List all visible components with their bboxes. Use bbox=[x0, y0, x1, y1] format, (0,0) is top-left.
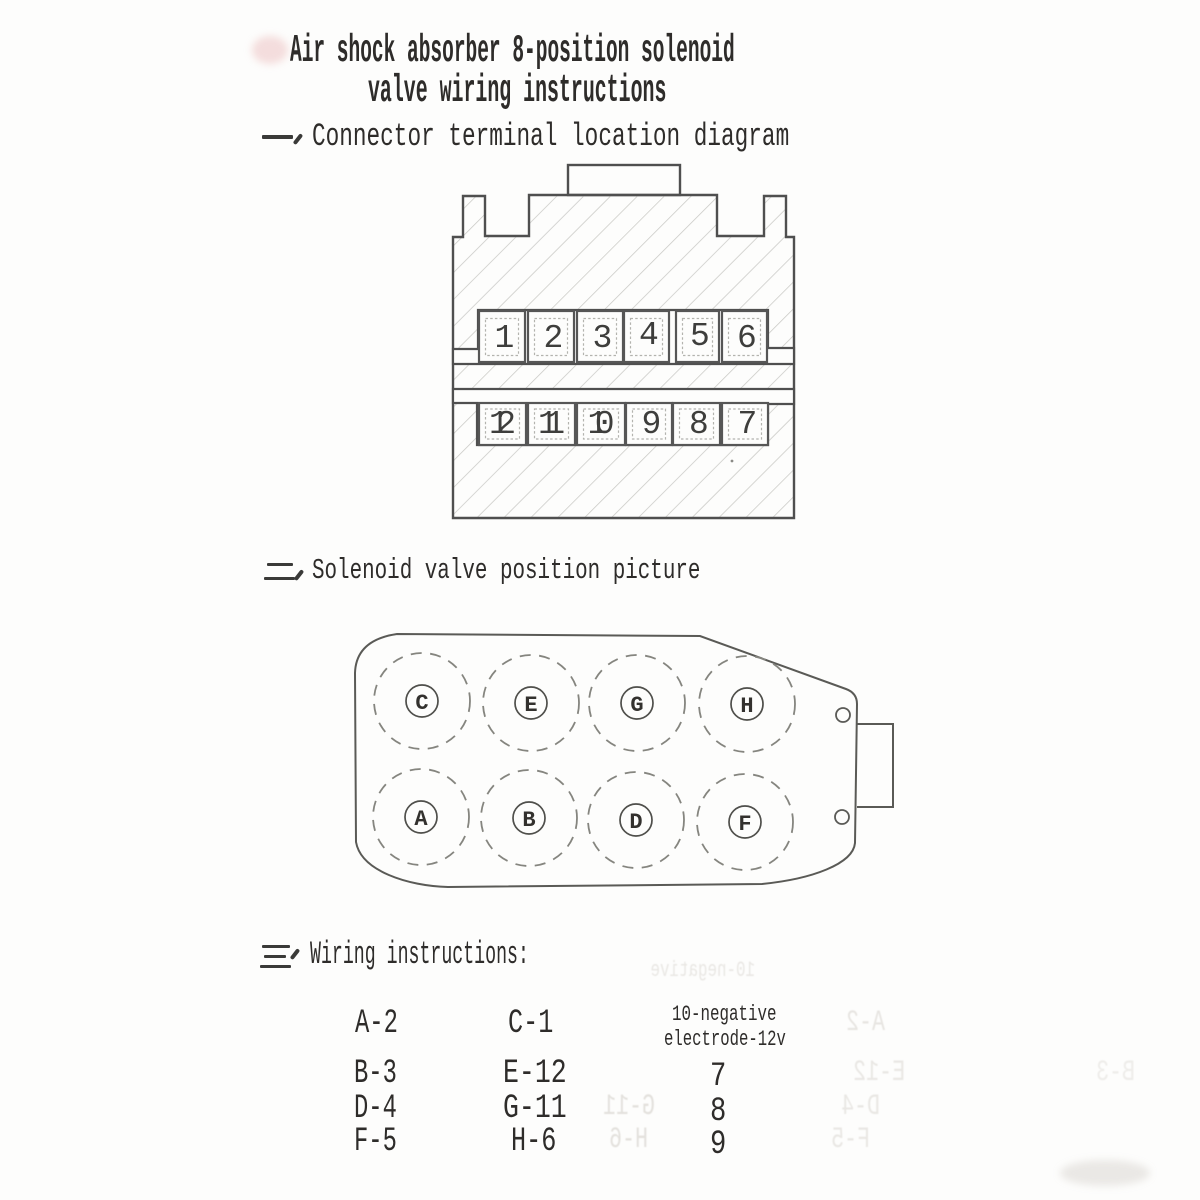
valve-position-G: G bbox=[630, 693, 643, 718]
terminal-boxes-bottom bbox=[479, 403, 768, 445]
pink-smudge bbox=[252, 36, 288, 64]
terminal-label-8: 8 bbox=[689, 406, 709, 443]
scanned-instruction-page: Air shock absorber 8-position solenoid v… bbox=[0, 0, 1200, 1200]
terminal-label-10: 10 bbox=[588, 406, 615, 443]
negative-note-line1: 10-negative bbox=[672, 1004, 777, 1026]
valve-position-E: E bbox=[524, 693, 537, 718]
section3-heading: Wiring instructions: bbox=[310, 939, 529, 971]
wiring-7: 7 bbox=[710, 1060, 726, 1094]
ghost-text: H-6 bbox=[609, 1125, 648, 1155]
connector-terminal-diagram: 1 2 3 4 5 6 12 11 10 9 bbox=[450, 158, 802, 522]
terminal-label-1: 1 bbox=[495, 320, 515, 357]
ghost-text: G-11 bbox=[603, 1092, 655, 1122]
valve-position-H: H bbox=[740, 694, 753, 719]
wiring-g11: G-11 bbox=[503, 1092, 567, 1126]
terminal-label-7: 7 bbox=[738, 406, 758, 443]
solenoid-valve-diagram: C E G H A B D F bbox=[350, 626, 902, 896]
terminal-label-4: 4 bbox=[639, 317, 659, 354]
page-title-line2: valve wiring instructions bbox=[368, 72, 666, 111]
page-title-line1: Air shock absorber 8-position solenoid bbox=[290, 32, 735, 71]
valve-side-tab bbox=[857, 724, 893, 807]
valve-position-F: F bbox=[738, 812, 751, 837]
ghost-text: E-12 bbox=[853, 1058, 905, 1088]
valve-hole-top bbox=[836, 708, 850, 722]
wiring-9: 9 bbox=[710, 1128, 726, 1162]
valve-position-D: D bbox=[629, 810, 642, 835]
wiring-h6: H-6 bbox=[511, 1125, 556, 1159]
terminal-label-12: 12 bbox=[489, 406, 516, 443]
wiring-c1: C-1 bbox=[508, 1007, 553, 1041]
negative-note-line2: electrode-12v bbox=[664, 1029, 786, 1051]
valve-body bbox=[355, 634, 857, 887]
valve-position-B: B bbox=[522, 808, 535, 833]
terminal-label-11: 11 bbox=[538, 406, 565, 443]
gray-smudge bbox=[1060, 1160, 1150, 1186]
ghost-text: A-2 bbox=[846, 1008, 885, 1038]
ghost-text: 10-negative bbox=[650, 960, 755, 982]
terminal-label-5: 5 bbox=[690, 318, 710, 355]
wiring-e12: E-12 bbox=[503, 1057, 567, 1091]
valve-hole-bottom bbox=[835, 810, 849, 824]
section2-heading: Solenoid valve position picture bbox=[312, 556, 700, 585]
terminal-label-3: 3 bbox=[593, 320, 613, 357]
terminal-boxes-top bbox=[479, 311, 767, 362]
scan-speck bbox=[731, 460, 734, 463]
connector-top-tab bbox=[568, 165, 680, 195]
section1-heading: Connector terminal location diagram bbox=[312, 121, 789, 153]
wiring-f5: F-5 bbox=[354, 1125, 397, 1159]
terminal-label-2: 2 bbox=[544, 320, 564, 357]
valve-position-A: A bbox=[414, 807, 428, 832]
wiring-a2: A-2 bbox=[355, 1007, 398, 1041]
wiring-d4: D-4 bbox=[354, 1092, 397, 1126]
terminal-label-6: 6 bbox=[737, 320, 757, 357]
terminal-label-9: 9 bbox=[642, 406, 662, 443]
wiring-8: 8 bbox=[710, 1095, 726, 1129]
valve-position-C: C bbox=[415, 691, 428, 716]
ghost-text: B-3 bbox=[1096, 1058, 1135, 1088]
ghost-text: F-5 bbox=[831, 1125, 870, 1155]
wiring-b3: B-3 bbox=[354, 1057, 397, 1091]
ghost-text: D-4 bbox=[841, 1092, 880, 1122]
